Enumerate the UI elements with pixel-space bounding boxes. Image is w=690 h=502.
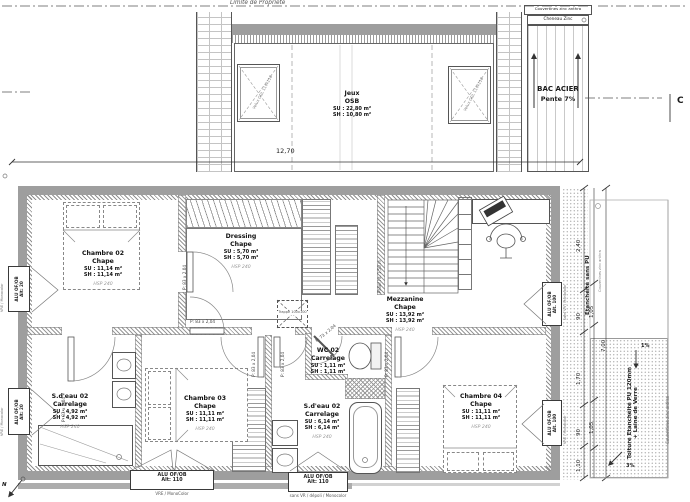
room-su: SU : 5,70 m² [201, 249, 281, 256]
couvertines-right-label: Couvertines zinc anthra [666, 396, 670, 444]
room-sh: SH : 4,92 m² [30, 415, 110, 422]
room-finish: Chape [63, 258, 143, 266]
room-sh: SH : 11,11 m² [165, 417, 245, 424]
room-sh: SH : 6,14 m² [282, 425, 362, 432]
north-label: N [2, 482, 7, 488]
room-su: SU : 11,14 m² [63, 266, 143, 273]
room-finish: Carrelage [288, 355, 368, 363]
room-hsp: HSP 240 [365, 328, 445, 333]
lower-level-edge-thin [352, 483, 560, 486]
window-alt: Alt. 100 [552, 410, 557, 435]
pillow [103, 205, 137, 228]
room-finish: Chape [201, 241, 281, 249]
couvertines-small-label: Couvertines zinc anthra [599, 250, 603, 292]
dim-node [3, 174, 7, 178]
toiture-line2: + Laine de Verre [633, 349, 639, 477]
room-su: SU : 11,11 m² [441, 409, 521, 416]
window-alt: Alt: 20 [19, 399, 24, 424]
room-label-wc02: WC 02 Carrelage SU : 1,11 m² SH : 1,11 m… [288, 347, 368, 376]
room-label-sdeau02-left: S.d'eau 02 Carrelage SU : 4,92 m² SH : 4… [30, 393, 110, 430]
room-name: Mezzanine [365, 296, 445, 304]
desk [472, 199, 550, 224]
window-left-upper: ALU OF/OB Alt: 20 [8, 266, 30, 312]
room-su: SU : 22,80 m² [312, 106, 392, 113]
vanity-cabinet [112, 352, 136, 379]
room-finish: OSB [312, 98, 392, 106]
window-sub-label: sans VR / Monocolor [564, 285, 568, 321]
palier-label: Palier ht. 1,50 m [378, 260, 382, 293]
room-label-chambre02: Chambre 02 Chape SU : 11,14 m² SH : 11,1… [63, 250, 143, 287]
slope-top-label: 1% [641, 344, 650, 350]
window-alt: Alt: 110 [131, 478, 213, 483]
dressing-hanging-rail [186, 199, 302, 228]
room-name: Chambre 02 [63, 250, 143, 258]
room-hsp: HSP 240 [201, 265, 281, 270]
dim-overall-height: 7,00 [601, 340, 607, 352]
door-label-narrow: P: 73 x 2,04 [315, 324, 337, 344]
room-hsp: HSP 240 [282, 435, 362, 440]
room-label-dressing: Dressing Chape SU : 5,70 m² SH : 5,70 m²… [201, 233, 281, 270]
door-swing-chambre04 [398, 337, 438, 377]
bac-acier-label-1: BAC ACIER [528, 86, 588, 94]
vanity-cabinet [112, 381, 136, 408]
room-su: SU : 6,14 m² [282, 419, 362, 426]
room-sh: SH : 11,11 m² [441, 415, 521, 422]
door-label: P: 83 x 2,04 [281, 352, 286, 377]
room-label-chambre04: Chambre 04 Chape SU : 11,11 m² SH : 11,1… [441, 393, 521, 430]
roof-wall-brick-right [496, 12, 522, 172]
window-bottom-mid: ALU OF/OB Alt: 110 [288, 472, 348, 492]
window-alt: Alt: 20 [19, 276, 24, 301]
room-name: Chambre 03 [165, 395, 245, 403]
room-label-chambre03: Chambre 03 Chape SU : 11,11 m² SH : 11,1… [165, 395, 245, 432]
room-su: SU : 4,92 m² [30, 409, 110, 416]
door-label: P: 83 x 2,04 [252, 352, 257, 377]
shower-tray [38, 425, 133, 466]
door-leaf-chambre03 [258, 337, 264, 377]
room-su: SU : 1,11 m² [288, 363, 368, 370]
dim-240: 2,40 [576, 240, 582, 252]
door-label: P: 83 x 2,04 [62, 397, 67, 422]
dim-90-upper: 90 [576, 313, 582, 320]
door-label: P: 83 x 2,04 [190, 320, 215, 325]
door-label: P: 83 x 2,04 [183, 265, 188, 290]
roof-drain [596, 204, 601, 209]
room-label-sdeau02-mid: S.d'eau 02 Carrelage SU : 6,14 m² SH : 6… [282, 403, 362, 440]
roof-strip-subheader-label: Cheneau Zinc [527, 17, 589, 22]
room-label-mezzanine: Mezzanine Chape SU : 13,92 m² SH : 13,92… [365, 296, 445, 333]
partition-ch02-dressing-upper [178, 195, 186, 252]
window-right-upper: ALU OF/OB Alt. 100 [542, 282, 562, 326]
dim-90-lower: 90 [576, 429, 582, 436]
roof-strip-header-label: Couvertines zinc anthra [524, 7, 592, 11]
room-su: SU : 11,11 m² [165, 411, 245, 418]
room-su: SU : 13,92 m² [365, 312, 445, 319]
staircase [388, 200, 458, 293]
room-finish: Chape [165, 403, 245, 411]
room-hsp: HSP 240 [63, 282, 143, 287]
room-finish: Chape [365, 304, 445, 312]
property-line-label: Limite de Propriété [230, 0, 285, 6]
partition-mid-e [432, 327, 546, 335]
section-mark-label: C [677, 96, 684, 106]
room-sh: SH : 1,11 m² [288, 369, 368, 376]
room-hsp: HSP 240 [165, 427, 245, 432]
room-sh: SH : 13,92 m² [365, 318, 445, 325]
room-finish: Chape [441, 401, 521, 409]
dressing-closet-a [302, 199, 331, 295]
window-alt: Alt. 100 [552, 291, 557, 316]
room-label-jeux: Jeux OSB SU : 22,80 m² SH : 10,80 m² [312, 90, 392, 119]
dim-170: 1,70 [576, 373, 582, 385]
wall-left [18, 186, 27, 480]
sash-right-lower [522, 404, 544, 444]
room-name: WC 02 [288, 347, 368, 355]
room-sh: SH : 5,70 m² [201, 255, 281, 262]
window-bottom-left: ALU OF/OB Alt: 110 [130, 470, 214, 490]
room-name: Dressing [201, 233, 281, 241]
window-left-lower: ALU OF/OB Alt: 20 [8, 388, 30, 435]
dressing-closet-b [335, 225, 358, 295]
partition-mid-a [27, 327, 62, 335]
floor-plan-canvas: ALU OF/OB Alt: 20 ALU OF/OB Alt: 20 ALU … [0, 0, 690, 502]
bath-ledge-hatch [345, 378, 385, 399]
wall-top [18, 186, 560, 195]
room-name: Jeux [312, 90, 392, 98]
room-finish: Carrelage [30, 401, 110, 409]
window-alt: Alt: 110 [289, 480, 347, 485]
toiture-label: Toiture Etanchéité PU 120mm + Laine de V… [627, 349, 639, 477]
door-leaf-sdeau-left [68, 337, 74, 381]
pillow [447, 452, 479, 471]
partition-mid-b [112, 327, 252, 335]
window-sub-label: VRE / Monocolor [1, 407, 5, 436]
window-right-lower: ALU OF/OB Alt. 100 [542, 400, 562, 446]
slope-bottom-label: 3% [626, 464, 635, 470]
partition-sdeau-ch03 [135, 335, 142, 467]
pillow [483, 452, 514, 471]
vanity-cabinet [272, 448, 298, 473]
room-sh: SH : 11,14 m² [63, 272, 143, 279]
room-name: S.d'eau 02 [282, 403, 362, 411]
sash-left-upper [32, 268, 58, 312]
window-sub-label: VRE / Monocolor [564, 415, 568, 444]
window-sub-label: VRE / MonoColor [130, 492, 214, 496]
roof-wall-brick-left [196, 12, 232, 172]
room-sh: SH : 10,80 m² [312, 112, 392, 119]
room-finish: Carrelage [282, 411, 362, 419]
chambre04-wardrobe [396, 388, 420, 473]
roof-hatch-band [232, 35, 496, 43]
window-sub-label: sans VR / dépoli / Monocolor [266, 494, 370, 498]
roof-coping-band [232, 24, 496, 35]
etancheite-label: Etanchéité sans PU [585, 255, 591, 315]
dim-110: 1,10 [576, 460, 582, 472]
door-swing-sdeau-left [71, 337, 115, 381]
partition-ch03-sdeau [265, 335, 272, 467]
bac-acier-label-2: Pente 7% [528, 96, 588, 103]
window-sub-label: VRE / Monocolor [1, 283, 5, 312]
room-hsp: HSP 240 [441, 425, 521, 430]
pillow [66, 205, 100, 228]
dim-105-lower: 1,05 [589, 422, 595, 434]
trappe-label: Trappe 100x100 [277, 311, 308, 315]
room-name: S.d'eau 02 [30, 393, 110, 401]
mezzanine-shelf [458, 197, 472, 290]
door-leaf-chambre04 [395, 337, 401, 377]
office-chair-icon [487, 224, 526, 258]
door-label: P: 83 x 2,04 [385, 352, 390, 377]
dim-overall-width: 12,70 [276, 148, 295, 155]
room-name: Chambre 04 [441, 393, 521, 401]
room-hsp: HSP 240 [30, 425, 110, 430]
